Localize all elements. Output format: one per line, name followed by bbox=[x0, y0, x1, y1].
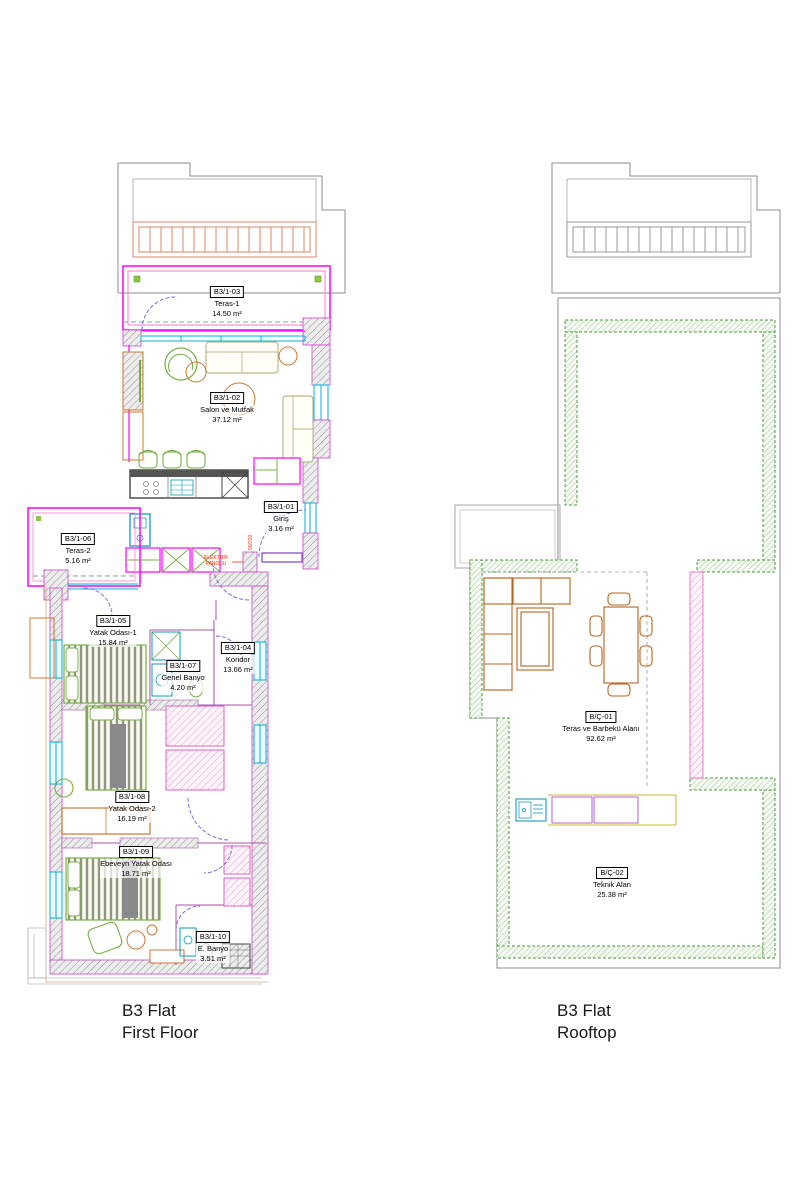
room-area: 13.66 m² bbox=[221, 665, 255, 675]
room-name: Teras-2 bbox=[61, 546, 95, 556]
room-name: Genel Banyo bbox=[161, 673, 204, 683]
room-area: 3.51 m² bbox=[196, 954, 230, 964]
barbecue-counter bbox=[516, 795, 676, 825]
room-code: B3/1-04 bbox=[221, 642, 255, 654]
room-name: Teras ve Barbekü Alanı bbox=[562, 724, 639, 734]
first-floor-plan bbox=[28, 163, 345, 984]
room-label-yatak-odasi-1: B3/1-05 Yatak Odası-1 15.84 m² bbox=[89, 610, 136, 647]
room-code: B3/1-01 bbox=[264, 501, 298, 513]
room-label-teras-barbeku: B/Ç-01 Teras ve Barbekü Alanı 92.62 m² bbox=[562, 706, 639, 743]
room-label-teras-2: B3/1-06 Teras-2 5.16 m² bbox=[61, 528, 95, 565]
room-name: E. Banyo bbox=[196, 944, 230, 954]
rooftop-right-wall bbox=[690, 572, 703, 778]
room-area: 4.20 m² bbox=[161, 683, 204, 693]
electric-panel-note: ELEKTRİK PANOSU bbox=[198, 555, 234, 567]
room-label-giris: B3/1-01 Giriş 3.16 m² bbox=[264, 496, 298, 533]
roof-outline-right bbox=[552, 163, 780, 293]
bar-stools bbox=[139, 451, 205, 469]
room-code: B3/1-07 bbox=[166, 660, 200, 672]
railing-band bbox=[133, 222, 316, 257]
room-code: B3/1-08 bbox=[115, 791, 149, 803]
room-area: 15.84 m² bbox=[89, 638, 136, 648]
room-code: B3/1-05 bbox=[96, 615, 130, 627]
room-name: Ebeveyn Yatak Odası bbox=[100, 859, 172, 869]
title-line-2: First Floor bbox=[122, 1022, 199, 1044]
room-label-teknik-alan: B/Ç-02 Teknik Alan 25.38 m² bbox=[593, 862, 631, 899]
rooftop-plan bbox=[455, 163, 780, 968]
room-label-ebeveyn-yatak-odasi: B3/1-09 Ebeveyn Yatak Odası 18.71 m² bbox=[100, 841, 172, 878]
room-label-yatak-odasi-2: B3/1-08 Yatak Odası-2 16.19 m² bbox=[108, 786, 155, 823]
kitchen-counter bbox=[130, 451, 248, 547]
room-area: 14.50 m² bbox=[210, 309, 244, 319]
first-floor-title: B3 Flat First Floor bbox=[122, 1000, 199, 1044]
room-code: B3/1-09 bbox=[119, 846, 153, 858]
title-line-1: B3 Flat bbox=[122, 1000, 199, 1022]
room-code: B/Ç-02 bbox=[596, 867, 627, 879]
room-label-teras-1: B3/1-03 Teras-1 14.50 m² bbox=[210, 281, 244, 318]
room-name: Yatak Odası-1 bbox=[89, 628, 136, 638]
rooftop-title: B3 Flat Rooftop bbox=[557, 1000, 617, 1044]
railing-band-right bbox=[567, 222, 751, 257]
room-code: B/Ç-01 bbox=[585, 711, 616, 723]
room-area: 5.16 m² bbox=[61, 556, 95, 566]
room-label-koridor: B3/1-04 Koridor 13.66 m² bbox=[221, 637, 255, 674]
room-label-genel-banyo: B3/1-07 Genel Banyo 4.20 m² bbox=[161, 655, 204, 692]
title-line-1: B3 Flat bbox=[557, 1000, 617, 1022]
room-code: B3/1-06 bbox=[61, 533, 95, 545]
room-name: Teknik Alan bbox=[593, 880, 631, 890]
room-code: B3/1-02 bbox=[210, 392, 244, 404]
roof-outline bbox=[118, 163, 345, 293]
room-name: Salon ve Mutfak bbox=[200, 405, 254, 415]
room-name: Yatak Odası-2 bbox=[108, 804, 155, 814]
door-size-note: 90/220 bbox=[249, 535, 254, 550]
room-area: 3.16 m² bbox=[264, 524, 298, 534]
room-area: 92.62 m² bbox=[562, 734, 639, 744]
room-code: B3/1-03 bbox=[210, 286, 244, 298]
room-area: 16.19 m² bbox=[108, 814, 155, 824]
room-area: 37.12 m² bbox=[200, 415, 254, 425]
plan-linework bbox=[0, 0, 800, 1200]
floor-plan-sheet: B3/1-03 Teras-1 14.50 m² B3/1-02 Salon v… bbox=[0, 0, 800, 1200]
electric-panel-line2: PANOSU bbox=[198, 561, 234, 567]
room-name: Teras-1 bbox=[210, 299, 244, 309]
title-line-2: Rooftop bbox=[557, 1022, 617, 1044]
room-name: Giriş bbox=[264, 514, 298, 524]
room-label-e-banyo: B3/1-10 E. Banyo 3.51 m² bbox=[196, 926, 230, 963]
room-label-salon: B3/1-02 Salon ve Mutfak 37.12 m² bbox=[200, 387, 254, 424]
room-area: 25.38 m² bbox=[593, 890, 631, 900]
room-area: 18.71 m² bbox=[100, 869, 172, 879]
room-code: B3/1-10 bbox=[196, 931, 230, 943]
rooftop-furniture bbox=[484, 578, 652, 696]
room-name: Koridor bbox=[221, 655, 255, 665]
